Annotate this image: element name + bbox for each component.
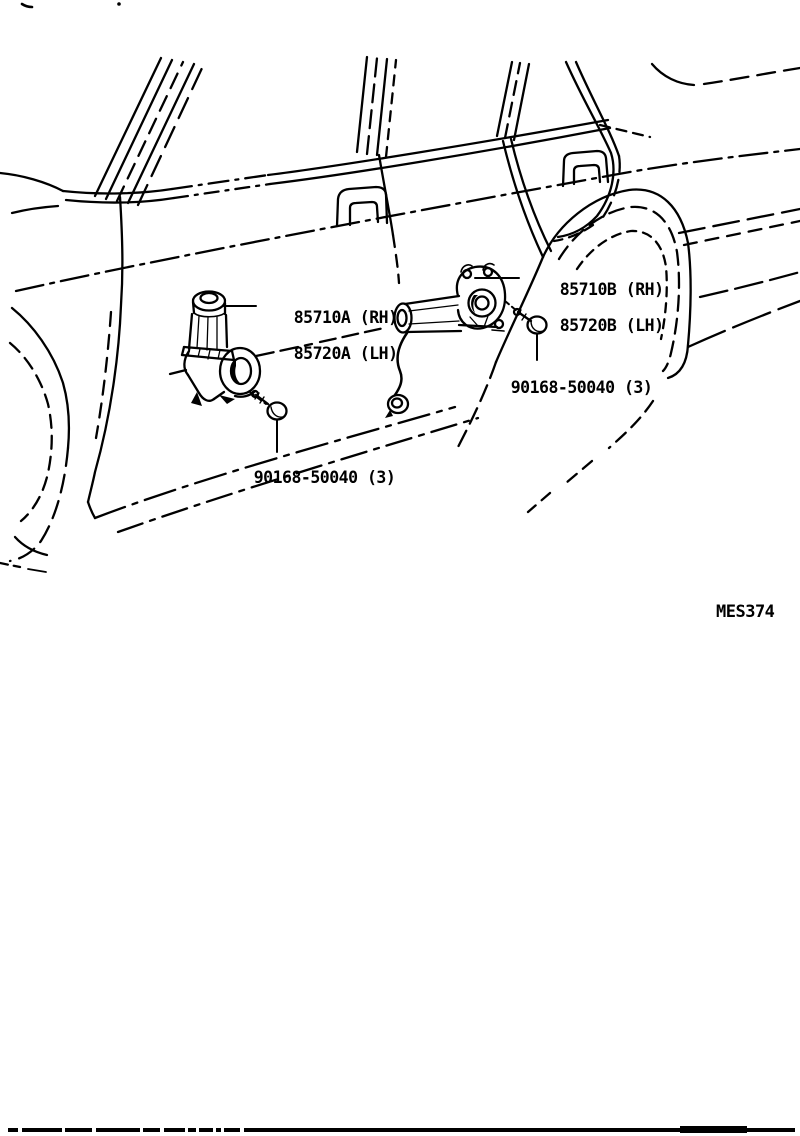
front-wheel-arch [0, 308, 69, 572]
rear-quarter-lines [652, 64, 800, 347]
scan-artifacts-top [22, 2, 121, 7]
front-motor-drawing [182, 292, 266, 407]
part-label-front-motor: 85710A (RH) 85720A (LH) [256, 291, 398, 381]
figure-code: MES374 [716, 602, 774, 622]
car-side-illustration [0, 0, 800, 1136]
front-door-edge [88, 197, 122, 502]
front-screw-drawing [252, 391, 287, 420]
body-crease-line [16, 149, 800, 291]
part-number-rear-motor-rh: 85710B (RH) [560, 280, 664, 299]
part-number-rear-motor-lh: 85720B (LH) [560, 316, 664, 335]
page-edge-artifact [8, 1126, 795, 1133]
a-pillar-lines [95, 58, 203, 205]
car-body-lines [0, 57, 800, 572]
front-door-handle [337, 187, 387, 226]
part-label-rear-motor: 85710B (RH) 85720B (LH) [522, 263, 664, 353]
part-label-front-screw: 90168-50040 (3) [216, 451, 395, 505]
beltline [63, 120, 650, 202]
part-number-front-motor-lh: 85720A (LH) [294, 344, 398, 363]
part-label-rear-screw: 90168-50040 (3) [473, 361, 652, 415]
catalog-page: 85710A (RH) 85720A (LH) 85710B (RH) 8572… [0, 0, 800, 1136]
part-number-rear-screw: 90168-50040 (3) [511, 378, 653, 397]
part-number-front-motor-rh: 85710A (RH) [294, 308, 398, 327]
part-number-front-screw: 90168-50040 (3) [254, 468, 396, 487]
